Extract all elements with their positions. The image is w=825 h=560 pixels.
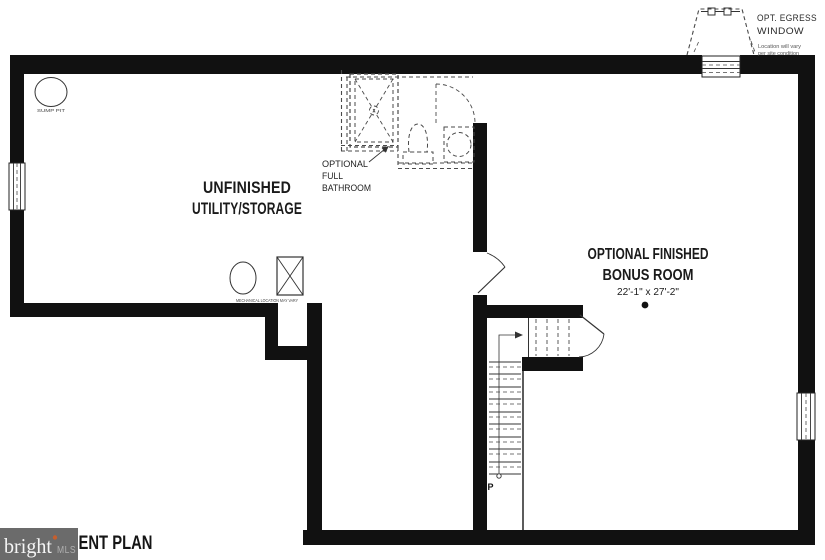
shower — [350, 74, 398, 147]
bonus-label-line1: OPTIONAL FINISHED — [588, 246, 709, 263]
bonus-room-door-swing — [487, 253, 505, 267]
egress-label-line2: WINDOW — [757, 26, 804, 37]
bonus-room-door — [478, 253, 505, 293]
sink-basin — [447, 133, 471, 157]
walls — [10, 55, 815, 545]
bathroom-label-line2: FULL — [322, 171, 343, 182]
optional-bathroom — [341, 70, 475, 169]
watermark-brand: bright — [4, 534, 52, 558]
sump-pit-circle — [35, 78, 67, 107]
watermark-flame-icon — [53, 535, 57, 539]
floor-plan-page: UP SUMP PIT MECHANICAL LOCATION MAY VARY… — [0, 0, 825, 560]
closet-door-swing — [579, 334, 604, 357]
bonus-room-door-leaf — [478, 267, 505, 293]
stair-direction-guide — [497, 332, 523, 479]
egress-note-line2: per site condition — [758, 51, 799, 57]
floor-plan-drawing: UP SUMP PIT MECHANICAL LOCATION MAY VARY… — [0, 0, 825, 560]
landing-wall-north — [487, 305, 583, 318]
landing-wall-south — [522, 357, 583, 371]
watermark-suffix: MLS — [57, 544, 76, 556]
interior-wall-upper — [473, 123, 487, 252]
egress-well-outline — [687, 9, 754, 55]
water-heater-circle — [230, 262, 256, 294]
toilet-bowl — [408, 124, 427, 152]
stair-guide-line — [499, 335, 517, 476]
furnace-x — [277, 257, 303, 295]
stair-tread-nosings — [489, 367, 521, 467]
stairs: UP — [481, 318, 569, 530]
wall-hall-west — [307, 303, 322, 530]
bathroom-label-line3: BATHROOM — [322, 183, 371, 194]
wall-utility-south — [10, 303, 278, 317]
closet-door-leaf — [580, 315, 604, 334]
egress-label-line1: OPT. EGRESS — [757, 13, 817, 24]
toilet-tank — [403, 152, 433, 164]
bathroom-door-swing — [436, 84, 475, 123]
bathroom-door — [436, 84, 475, 123]
shower-x — [355, 79, 393, 142]
wall-top-left-segment — [10, 55, 702, 74]
bathroom-label-line1: OPTIONAL — [322, 159, 368, 170]
landing-overhead-dashes — [536, 319, 569, 356]
window-left — [9, 163, 25, 210]
stair-guide-arrowhead — [515, 332, 523, 339]
utility-label-line1: UNFINISHED — [203, 178, 291, 197]
plan-title: ENT PLAN — [79, 533, 153, 554]
stair-guide-origin — [497, 474, 501, 478]
toilet — [403, 124, 433, 164]
up-label: UP — [481, 482, 494, 492]
egress-window-well — [687, 8, 755, 55]
bonus-dimensions: 22'-1" x 27'-2" — [617, 286, 679, 298]
wall-left-lower-segment — [10, 210, 24, 317]
plan-footer: ENT PLAN bright MLS — [0, 528, 153, 560]
window-right — [797, 393, 815, 440]
wall-right-lower-segment — [798, 440, 815, 545]
wall-left-upper-segment — [10, 55, 24, 163]
egress-note-line1: Location will vary — [758, 44, 801, 50]
sink — [444, 127, 474, 162]
wall-right-upper-segment — [798, 55, 815, 393]
window-egress — [702, 56, 740, 77]
utility-label-line2: UTILITY/STORAGE — [192, 199, 302, 218]
interior-wall-lower — [473, 295, 487, 530]
closet-door — [579, 315, 604, 357]
sump-pit-label: SUMP PIT — [37, 108, 65, 114]
window-egress-frame — [702, 56, 740, 77]
egress-leader-lines — [694, 41, 755, 52]
bonus-label-line2: BONUS ROOM — [603, 267, 694, 284]
bathroom-wall-dashes — [341, 70, 474, 169]
bonus-room-dot — [642, 302, 649, 309]
wall-bottom — [303, 530, 815, 545]
mechanical-note: MECHANICAL LOCATION MAY VARY — [236, 298, 299, 304]
